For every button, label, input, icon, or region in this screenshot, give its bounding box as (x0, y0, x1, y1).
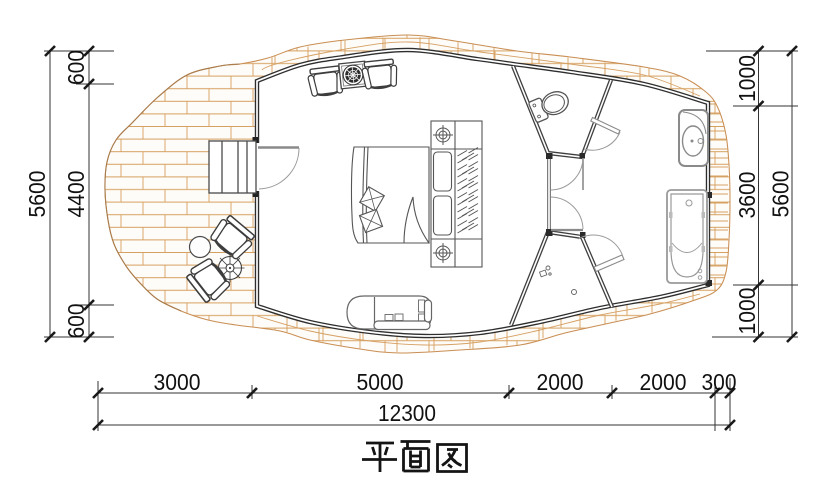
svg-text:2000: 2000 (537, 369, 584, 395)
svg-text:3600: 3600 (734, 172, 760, 219)
svg-text:300: 300 (702, 369, 737, 395)
svg-text:5000: 5000 (357, 369, 404, 395)
svg-text:12300: 12300 (378, 400, 436, 426)
svg-text:600: 600 (63, 50, 89, 85)
svg-text:1000: 1000 (734, 55, 760, 102)
svg-text:3000: 3000 (154, 369, 201, 395)
svg-text:4400: 4400 (63, 171, 89, 218)
svg-text:1000: 1000 (734, 288, 760, 335)
svg-text:600: 600 (63, 304, 89, 339)
svg-text:5600: 5600 (768, 171, 794, 218)
svg-text:2000: 2000 (640, 369, 687, 395)
svg-text:5600: 5600 (24, 171, 50, 218)
